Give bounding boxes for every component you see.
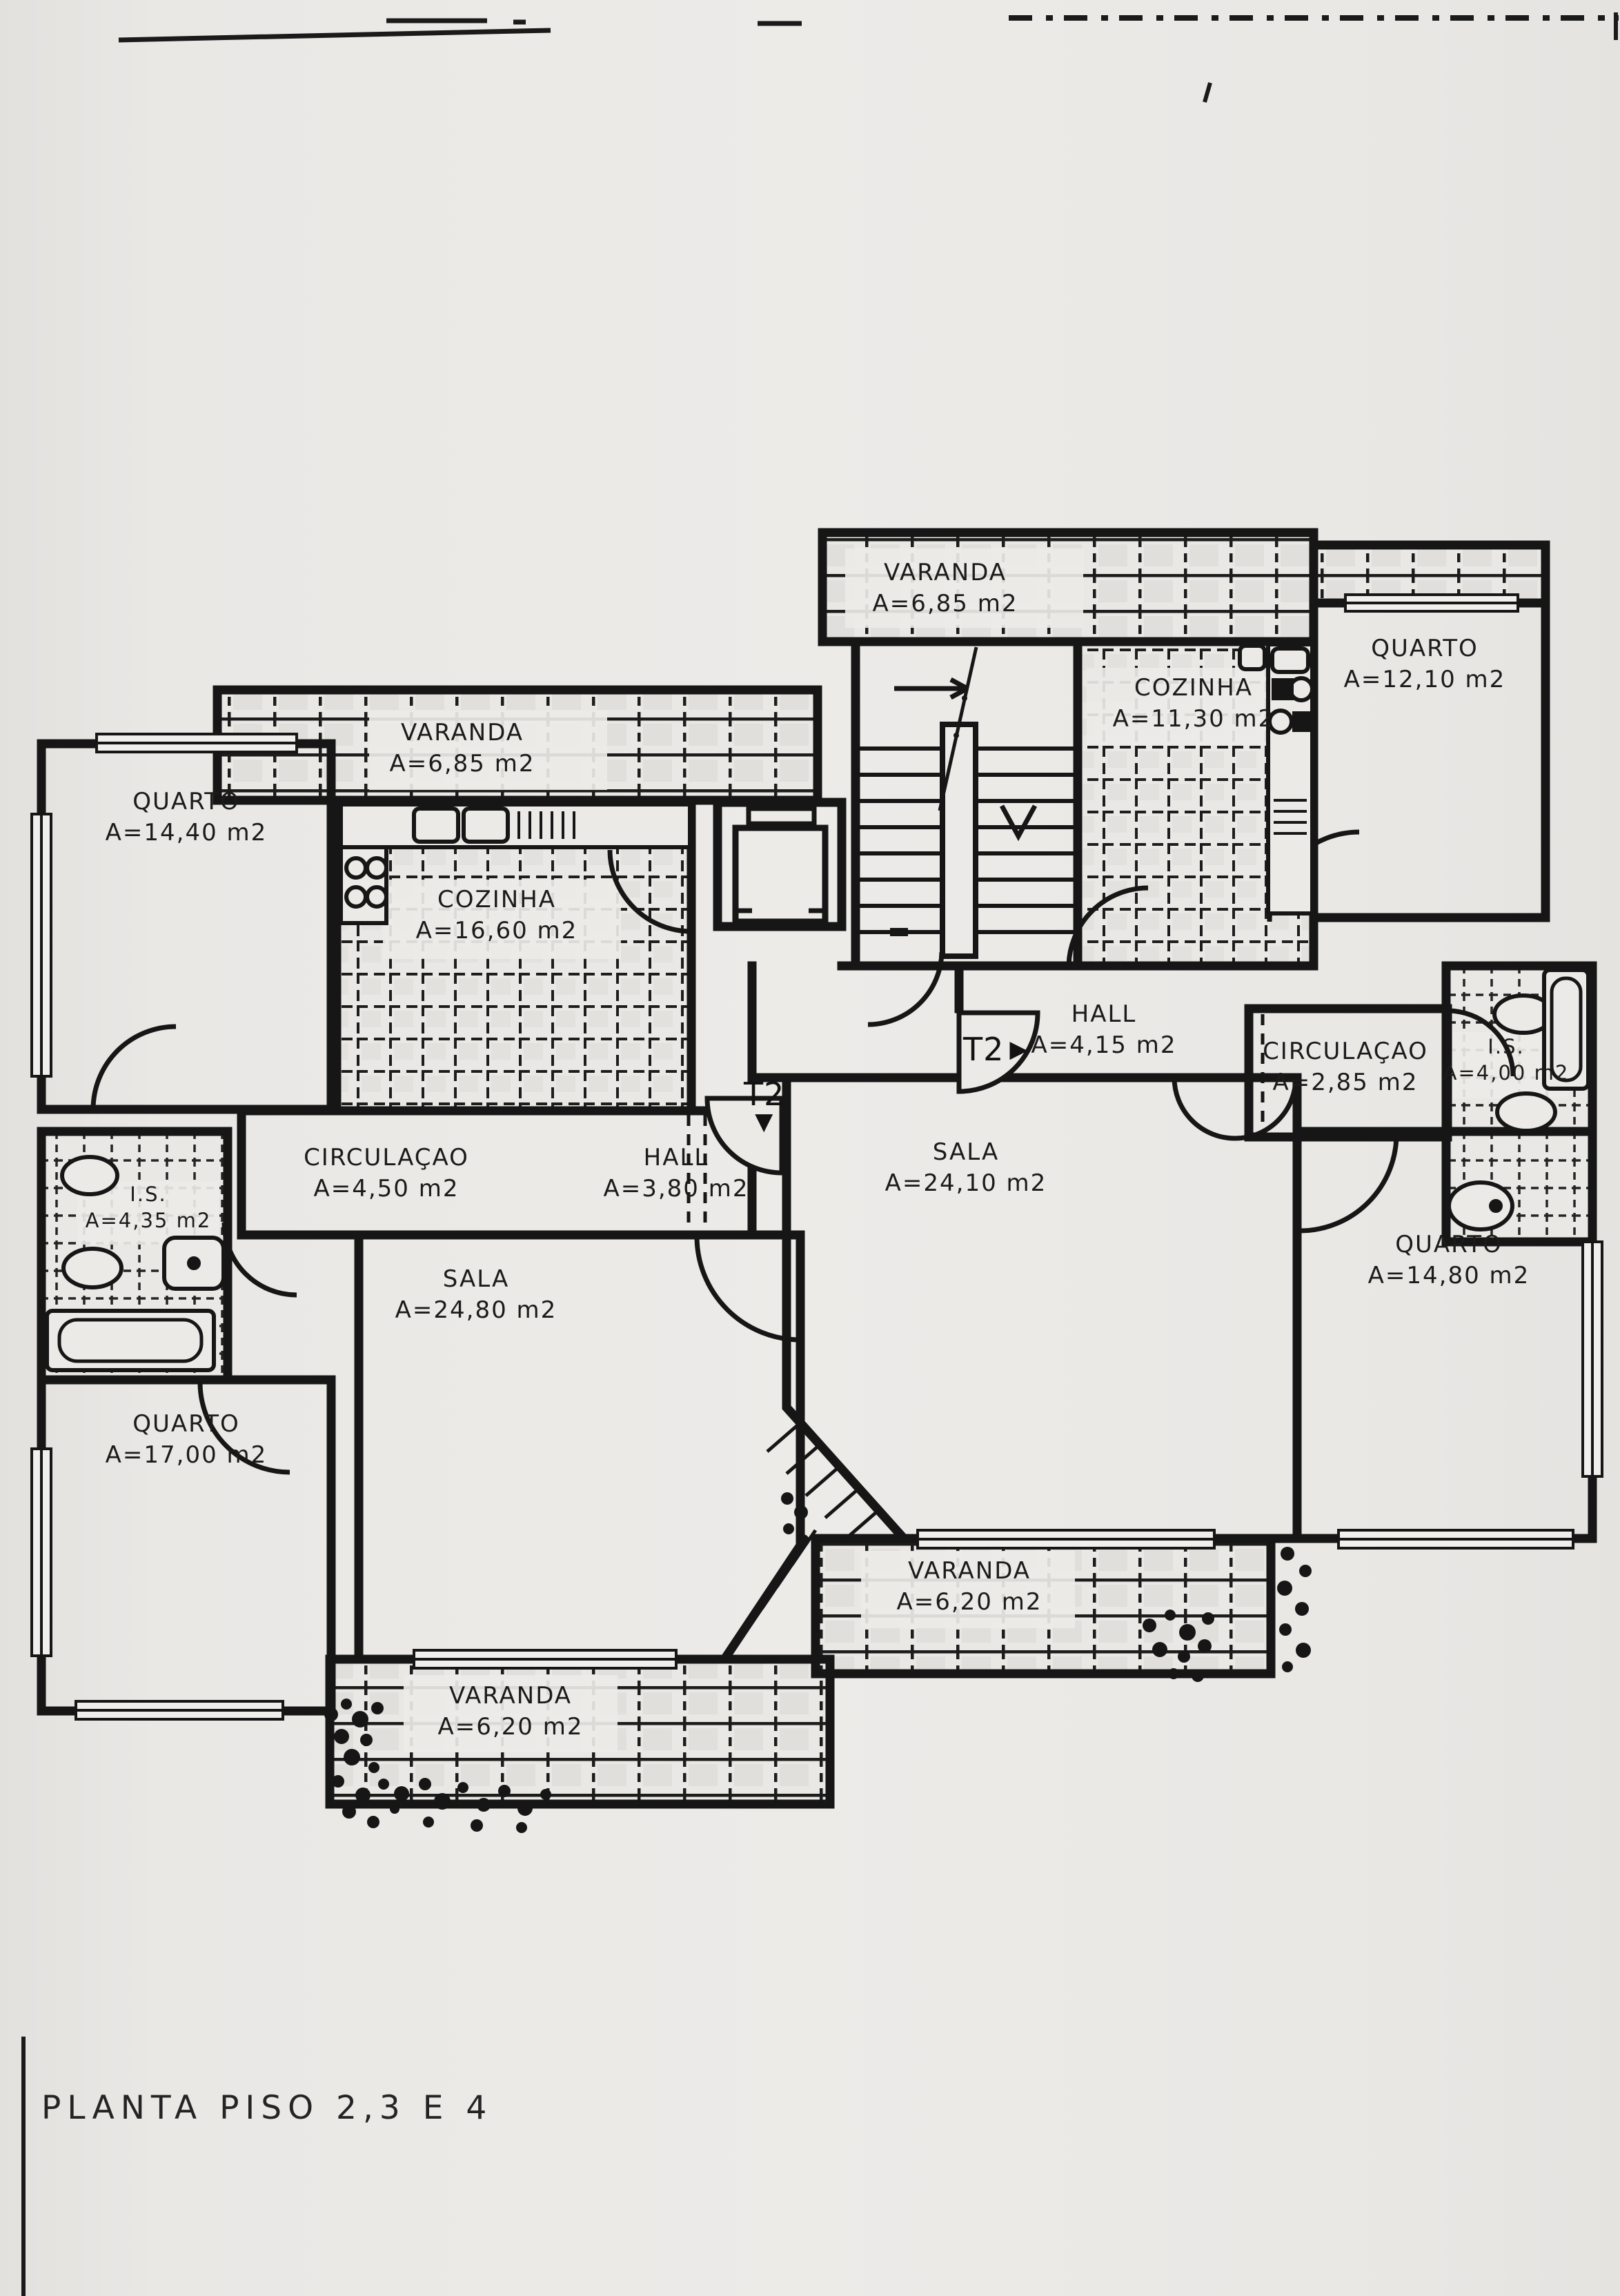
room-name: CIRCULAÇAO (1225, 1036, 1466, 1067)
room-area: A=14,40 m2 (55, 818, 317, 849)
room-label-sala-right: SALA A=24,10 m2 (821, 1137, 1111, 1199)
room-label-is-right: I.S. A=4,00 m2 (1441, 1033, 1572, 1087)
unit-marker-t2-right: T2▶ (963, 1031, 1029, 1068)
room-label-quarto-bottom-left: QUARTO A=17,00 m2 (55, 1409, 317, 1471)
room-label-circulacao-right: CIRCULAÇAO A=2,85 m2 (1225, 1036, 1466, 1098)
room-name: QUARTO (55, 786, 317, 818)
room-label-varanda-bottom: VARANDA A=6,20 m2 (379, 1681, 642, 1743)
room-name: VARANDA (814, 557, 1076, 588)
room-name: QUARTO (1304, 633, 1545, 664)
room-area: A=24,80 m2 (331, 1295, 621, 1326)
room-name: SALA (331, 1264, 621, 1295)
room-name: SALA (821, 1137, 1111, 1168)
room-label-is-left: I.S. A=4,35 m2 (66, 1181, 231, 1234)
room-label-quarto-top-right: QUARTO A=12,10 m2 (1304, 633, 1545, 695)
room-name: I.S. (1441, 1033, 1572, 1060)
arrow-down-icon: ▼ (755, 1110, 773, 1134)
room-name: CIRCULAÇAO (241, 1142, 531, 1174)
room-name: VARANDA (331, 717, 593, 749)
room-label-varanda-mid: VARANDA A=6,20 m2 (838, 1556, 1100, 1618)
room-area: A=4,00 m2 (1441, 1060, 1572, 1086)
room-label-circulacao-left: CIRCULAÇAO A=4,50 m2 (241, 1142, 531, 1205)
room-name: COZINHA (1080, 673, 1307, 704)
elevator (735, 809, 825, 922)
plan-title: PLANTA PISO 2,3 E 4 (41, 2089, 493, 2127)
room-label-sala-left: SALA A=24,80 m2 (331, 1264, 621, 1326)
room-label-varanda-left: VARANDA A=6,85 m2 (331, 717, 593, 780)
room-name: HALL (573, 1142, 780, 1174)
unit-label: T2 (963, 1031, 1004, 1068)
room-name: VARANDA (838, 1556, 1100, 1587)
room-area: A=12,10 m2 (1304, 664, 1545, 695)
room-label-quarto-right: QUARTO A=14,80 m2 (1311, 1229, 1587, 1291)
arrow-right-icon: ▶ (1009, 1038, 1028, 1061)
room-area: A=6,20 m2 (838, 1587, 1100, 1618)
room-area: A=6,20 m2 (379, 1712, 642, 1743)
room-area: A=4,50 m2 (241, 1174, 531, 1205)
room-label-cozinha-left: COZINHA A=16,60 m2 (352, 884, 642, 947)
room-area: A=2,85 m2 (1225, 1067, 1466, 1098)
room-label-quarto-top-left: QUARTO A=14,40 m2 (55, 786, 317, 849)
staircase (860, 647, 1074, 956)
scanned-floor-plan-sheet: VARANDA A=6,85 m2 QUARTO A=12,10 m2 COZI… (0, 0, 1620, 2296)
room-area: A=6,85 m2 (331, 749, 593, 780)
room-area: A=16,60 m2 (352, 916, 642, 947)
room-area: A=17,00 m2 (55, 1440, 317, 1471)
room-area: A=4,35 m2 (66, 1207, 231, 1234)
room-label-cozinha-right: COZINHA A=11,30 m2 (1080, 673, 1307, 735)
room-area: A=14,80 m2 (1311, 1260, 1587, 1291)
unit-marker-t2-down: T2▼ (744, 1080, 784, 1134)
room-area: A=3,80 m2 (573, 1174, 780, 1205)
room-name: VARANDA (379, 1681, 642, 1712)
room-area: A=6,85 m2 (814, 588, 1076, 620)
room-name: QUARTO (1311, 1229, 1587, 1260)
room-name: COZINHA (352, 884, 642, 916)
room-label-hall-left: HALL A=3,80 m2 (573, 1142, 780, 1205)
room-label-varanda-top: VARANDA A=6,85 m2 (814, 557, 1076, 620)
unit-label: T2 (744, 1080, 784, 1109)
room-area: A=24,10 m2 (821, 1168, 1111, 1199)
room-name: I.S. (66, 1181, 231, 1207)
room-name: QUARTO (55, 1409, 317, 1440)
room-name: HALL (987, 999, 1221, 1030)
room-area: A=11,30 m2 (1080, 704, 1307, 735)
